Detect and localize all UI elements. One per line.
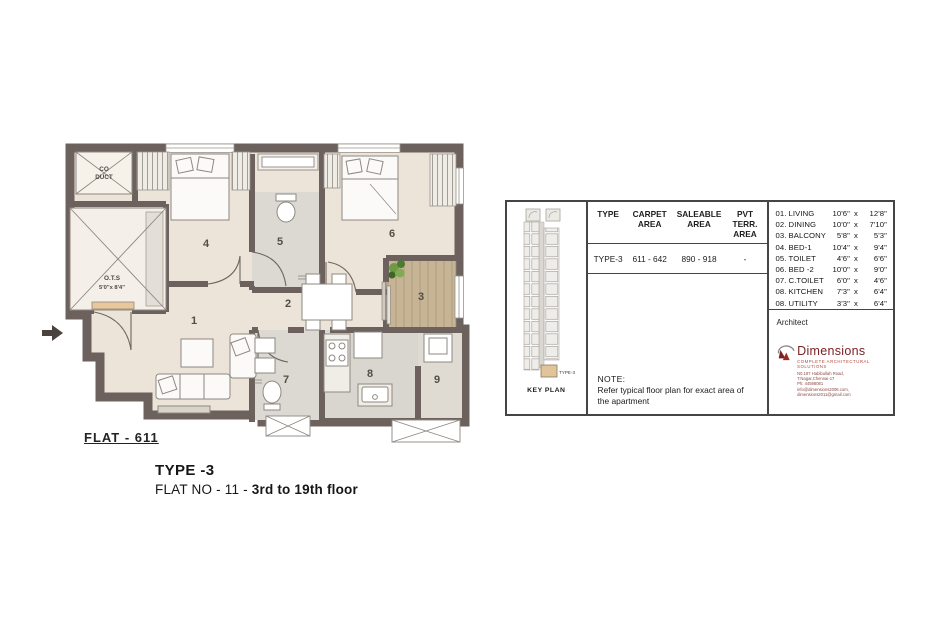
cell-saleable: 890 - 918 bbox=[673, 254, 726, 264]
flat-floor-range: 3rd to 19th floor bbox=[252, 482, 358, 497]
key-plan-unit-tag: TYPE-3 bbox=[559, 370, 575, 375]
note-body: Refer typical floor plan for exact area … bbox=[598, 385, 758, 406]
ots-label-1: O.T.S bbox=[104, 275, 121, 282]
room-dim-row: 05.TOILET 4'6"x6'6" bbox=[776, 253, 888, 264]
key-plan-section: TYPE-3 KEY PLAN bbox=[507, 202, 588, 414]
room-label-toilet: 5 bbox=[277, 236, 283, 248]
room-dim-row: 08.UTILITY 3'3"x6'4" bbox=[776, 298, 888, 309]
room-label-bed1: 4 bbox=[203, 238, 210, 250]
entrance-shelf bbox=[92, 302, 134, 309]
bed-2 bbox=[342, 156, 398, 220]
title-block: TYPE -3 FLAT NO - 11 - 3rd to 19th floor bbox=[155, 462, 358, 497]
cell-type: TYPE-3 bbox=[590, 254, 627, 264]
room-label-ctoilet: 7 bbox=[283, 374, 289, 386]
architect-firm-name: Dimensions bbox=[797, 344, 887, 358]
room-label-dining: 2 bbox=[285, 298, 291, 310]
info-panel: TYPE-3 KEY PLAN TYPE CARPET AREA SALEABL… bbox=[505, 200, 895, 416]
header-pvt-terr: PVT TERR. bbox=[725, 209, 764, 229]
room-dimension-list: 01.LIVING 10'6"x12'8" 02.DINING 10'0"x7'… bbox=[769, 202, 893, 310]
room-dim-row: 03.BALCONY 5'8"x5'3" bbox=[776, 230, 888, 241]
room-dim-row: 06.BED -2 10'0"x9'0" bbox=[776, 264, 888, 275]
room-dim-row: 01.LIVING 10'6"x12'8" bbox=[776, 208, 888, 219]
floor-plan-drawing: CO DUCT O.T.S 5'0"x 8'4" bbox=[40, 134, 470, 446]
type-title: TYPE -3 bbox=[155, 462, 358, 479]
room-label-utility: 9 bbox=[434, 374, 440, 386]
room-dim-row: 07.C.TOILET 6'0"x4'6" bbox=[776, 275, 888, 286]
room-label-bed2: 6 bbox=[389, 228, 395, 240]
room-label-living: 1 bbox=[191, 315, 197, 327]
room-label-kitchen: 8 bbox=[367, 368, 373, 380]
flat-floor-title: FLAT NO - 11 - 3rd to 19th floor bbox=[155, 482, 358, 497]
area-table-section: TYPE CARPET AREA SALEABLE AREA PVT TERR.… bbox=[588, 202, 769, 414]
header-saleable: SALEABLE bbox=[673, 209, 726, 219]
header-carpet: CARPET bbox=[627, 209, 673, 219]
room-label-balcony: 3 bbox=[418, 291, 424, 303]
room-dimensions-section: 01.LIVING 10'6"x12'8" 02.DINING 10'0"x7'… bbox=[769, 202, 893, 414]
key-plan-label: KEY PLAN bbox=[527, 387, 565, 394]
co-duct-shaft: CO DUCT bbox=[76, 152, 132, 194]
ots-label-2: 5'0"x 8'4" bbox=[99, 285, 125, 291]
architect-email: info@dimensions2006.com, dimensions2011@… bbox=[797, 387, 887, 398]
key-plan-drawing: TYPE-3 bbox=[517, 208, 575, 384]
note-heading: NOTE: bbox=[598, 374, 759, 384]
ots-shaft: O.T.S 5'0"x 8'4" bbox=[70, 208, 166, 310]
washing-machine bbox=[424, 334, 452, 362]
floor-plan-sheet: CO DUCT O.T.S 5'0"x 8'4" bbox=[0, 0, 950, 632]
architect-block: Architect Dimensions COMPLETE ARCHITECTU… bbox=[769, 310, 893, 414]
header-type: TYPE bbox=[590, 209, 627, 219]
area-table-row: TYPE-3 611 - 642 890 - 918 - bbox=[588, 244, 767, 274]
co-duct-label-1: CO bbox=[99, 166, 109, 173]
bed-1 bbox=[171, 154, 229, 220]
flat-number-label: FLAT - 611 bbox=[84, 430, 159, 445]
entrance-arrow-icon bbox=[42, 325, 63, 341]
dimensions-logo-icon bbox=[777, 344, 796, 366]
flat-floor-prefix: FLAT NO - 11 - bbox=[155, 482, 252, 497]
room-dim-row: 02.DINING 10'0"x7'10" bbox=[776, 219, 888, 230]
room-dim-row: 08.KITCHEN 7'3"x6'4" bbox=[776, 286, 888, 297]
room-dim-row: 04.BED-1 10'4"x9'4" bbox=[776, 242, 888, 253]
cell-pvt-terr: - bbox=[725, 254, 764, 264]
dresser bbox=[258, 154, 318, 170]
cell-carpet: 611 - 642 bbox=[627, 254, 673, 264]
architect-tagline: COMPLETE ARCHITECTURAL SOLUTIONS bbox=[797, 359, 887, 369]
note-block: NOTE: Refer typical floor plan for exact… bbox=[588, 368, 767, 414]
key-plan-highlight-unit bbox=[541, 365, 557, 377]
co-duct-label-2: DUCT bbox=[95, 174, 113, 181]
architect-label: Architect bbox=[777, 318, 887, 327]
area-table-header: TYPE CARPET AREA SALEABLE AREA PVT TERR.… bbox=[588, 202, 767, 244]
